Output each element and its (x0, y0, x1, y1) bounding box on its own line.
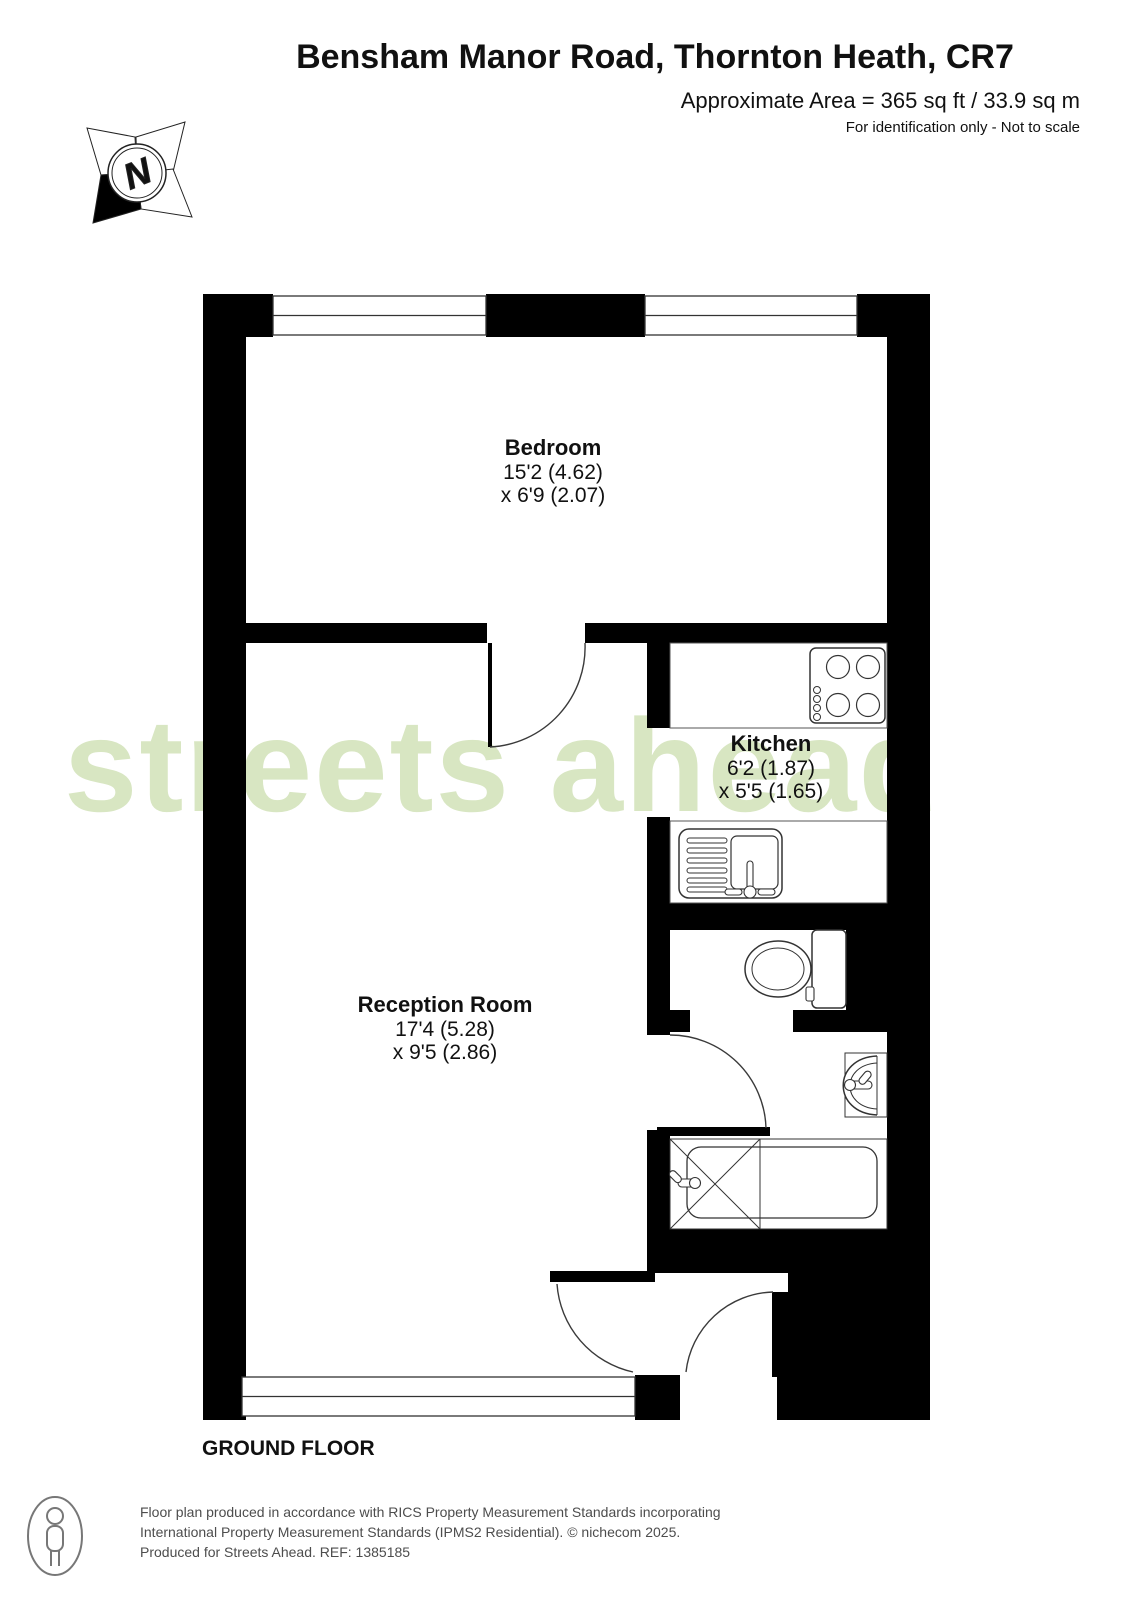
wall-bottom-block (635, 1375, 680, 1420)
footer-disclaimer: Floor plan produced in accordance with R… (140, 1502, 1040, 1562)
wall-stub-left (670, 1010, 690, 1032)
wall-lobby-right (788, 1273, 930, 1377)
toilet-bowl (745, 941, 811, 997)
floor-plan: Bedroom 15'2 (4.62) x 6'9 (2.07) Kitchen… (0, 0, 1131, 1599)
wall-bedroom-reception-left (246, 623, 487, 643)
window-reception (242, 1377, 635, 1416)
wall-bottom-right (777, 1377, 930, 1420)
kitchen-dim2: x 5'5 (1.65) (719, 780, 823, 803)
wall-wc-right-block (846, 930, 887, 1010)
reception-label: Reception Room (358, 992, 533, 1017)
person-icon (28, 1497, 82, 1575)
compass-icon: N (87, 122, 192, 223)
sink-tap-handle (758, 889, 775, 895)
toilet (745, 930, 846, 1008)
floor-name: GROUND FLOOR (202, 1437, 375, 1461)
kitchen-dim1: 6'2 (1.87) (727, 757, 815, 780)
door-entrance (686, 1292, 788, 1377)
wall-stub-right (793, 1010, 887, 1032)
bath-tap-base (690, 1178, 701, 1189)
footer-line-1: Floor plan produced in accordance with R… (140, 1502, 1040, 1522)
basin-tap-base (845, 1080, 856, 1091)
toilet-cistern (812, 930, 846, 1008)
bath (668, 1139, 887, 1229)
hob (810, 648, 885, 723)
scale-disclaimer: For identification only - Not to scale (560, 119, 1080, 136)
wall-kitchen-lower (647, 817, 670, 903)
bedroom-dim1: 15'2 (4.62) (503, 461, 603, 484)
footer-line-2: International Property Measurement Stand… (140, 1522, 1040, 1542)
wall-top-middle (486, 294, 645, 337)
sink-tap-handle (725, 889, 742, 895)
door-bedroom (488, 643, 585, 747)
footer-line-3: Produced for Streets Ahead. REF: 1385185 (140, 1542, 1040, 1562)
reception-dim1: 17'4 (5.28) (395, 1018, 495, 1041)
bath-tub (687, 1147, 877, 1218)
page-title: Bensham Manor Road, Thornton Heath, CR7 (190, 38, 1120, 77)
sink-tap-base (744, 886, 756, 898)
wall-bathroom-left (647, 930, 670, 1035)
door-reception-exit (550, 1271, 655, 1372)
door-bathroom (657, 1035, 770, 1136)
approximate-area: Approximate Area = 365 sq ft / 33.9 sq m (560, 88, 1080, 114)
wall-kitchen-upper (647, 643, 670, 728)
window-bedroom-right (645, 296, 857, 335)
window-bedroom-left (273, 296, 486, 335)
bedroom-label: Bedroom (505, 435, 602, 460)
wash-basin (843, 1053, 887, 1117)
toilet-flush (806, 987, 814, 1001)
wall-bedroom-reception-right (585, 623, 887, 643)
wall-left (203, 294, 246, 1420)
reception-dim2: x 9'5 (2.86) (393, 1041, 497, 1064)
wall-bathroom-bottom (647, 1229, 930, 1273)
kitchen-sink (679, 829, 782, 898)
bedroom-dim2: x 6'9 (2.07) (501, 484, 605, 507)
wall-kitchen-bottom (647, 903, 930, 930)
kitchen-label: Kitchen (731, 731, 812, 756)
